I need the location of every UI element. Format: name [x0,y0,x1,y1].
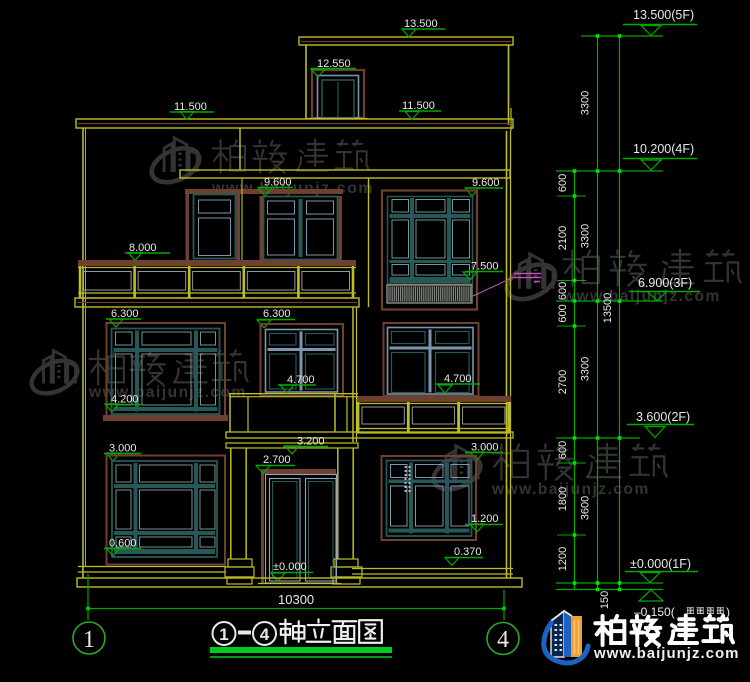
svg-text:–0.150(: –0.150( [634,605,675,619]
svg-text:6.300: 6.300 [111,308,139,320]
svg-text:1200: 1200 [557,547,569,571]
svg-text:1.200: 1.200 [471,513,499,525]
svg-text:1: 1 [83,627,95,653]
svg-text:4.700: 4.700 [444,373,472,385]
svg-text:13500: 13500 [602,293,614,324]
svg-text:13.500(5F): 13.500(5F) [633,8,694,22]
svg-text:4: 4 [260,625,270,644]
svg-text:7.500: 7.500 [471,261,499,273]
svg-text:4: 4 [497,627,509,653]
svg-text:www.baijunjz.com: www.baijunjz.com [562,288,721,305]
svg-text:600: 600 [557,304,569,322]
svg-text:±0.000(1F): ±0.000(1F) [630,557,691,571]
svg-text:2700: 2700 [557,370,569,394]
svg-text:3.200: 3.200 [297,436,325,448]
svg-text:600: 600 [557,174,569,192]
svg-text:11.500: 11.500 [402,100,435,112]
svg-text:0.370: 0.370 [454,546,482,558]
svg-text:600: 600 [557,282,569,300]
svg-text:13.500: 13.500 [404,18,438,30]
svg-text:3.600(2F): 3.600(2F) [636,410,690,424]
svg-text:): ) [726,605,730,619]
svg-text:1: 1 [219,625,228,644]
svg-text:4.700: 4.700 [287,374,315,386]
svg-text:600: 600 [557,441,569,459]
svg-text:9.600: 9.600 [264,177,292,189]
svg-text:2.700: 2.700 [263,454,291,466]
svg-text:3300: 3300 [580,224,592,248]
svg-text:6.900(3F): 6.900(3F) [638,276,692,290]
svg-text:www.baijunjz.com: www.baijunjz.com [491,481,650,498]
svg-text:±0.000: ±0.000 [273,561,307,573]
svg-text:3600: 3600 [580,496,592,520]
svg-text:3300: 3300 [580,91,592,115]
svg-text:10.200(4F): 10.200(4F) [633,142,694,156]
svg-text:www.baijunjz.com: www.baijunjz.com [593,645,739,662]
svg-text:3300: 3300 [580,357,592,381]
svg-text:1800: 1800 [557,487,569,511]
svg-text:150: 150 [599,591,611,609]
svg-text:6.300: 6.300 [263,308,291,320]
svg-text:2100: 2100 [557,226,569,250]
svg-text:10300: 10300 [278,592,314,607]
svg-text:9.600: 9.600 [472,177,500,189]
